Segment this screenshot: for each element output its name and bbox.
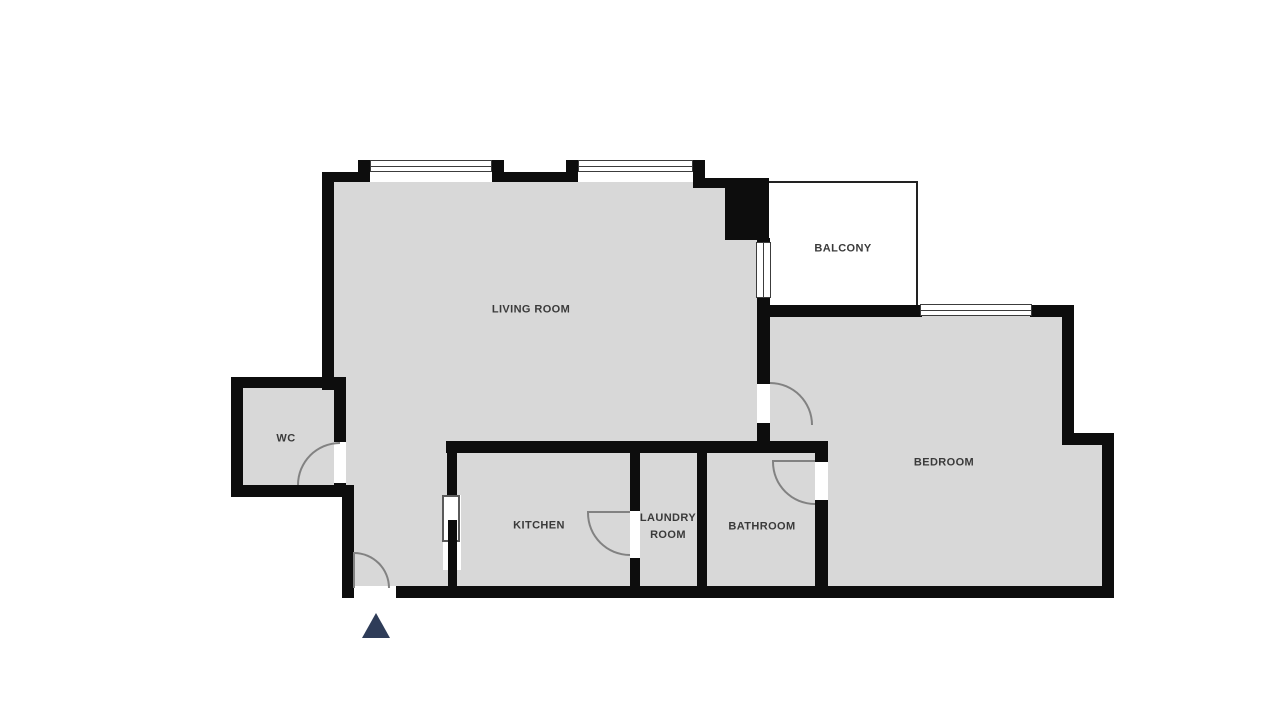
kitchen-door-leaf [587, 511, 630, 513]
wall [630, 558, 640, 588]
wall [231, 485, 346, 497]
wall [334, 388, 346, 442]
bathroom-door-leaf [772, 460, 815, 462]
wall [815, 500, 828, 588]
wall [231, 377, 346, 388]
door-gap [815, 462, 828, 500]
wall [693, 178, 727, 188]
wall [815, 453, 828, 462]
wall [342, 586, 1114, 598]
wall [1062, 305, 1074, 445]
floor-plan-canvas: LIVING ROOM BALCONY BEDROOM WC KITCHEN L… [0, 0, 1272, 716]
window [920, 304, 1032, 316]
wall [231, 377, 243, 497]
wall [1102, 433, 1114, 598]
wall [446, 441, 828, 453]
entrance-marker-icon [362, 613, 390, 638]
window [370, 160, 492, 172]
living-room-label: LIVING ROOM [492, 301, 570, 318]
wall [358, 160, 370, 182]
wall [448, 520, 457, 598]
door-gap [757, 384, 770, 423]
wall [630, 453, 640, 511]
wc-label: WC [276, 430, 295, 447]
bedroom-label: BEDROOM [914, 454, 974, 471]
kitchen-label: KITCHEN [513, 517, 565, 534]
wall [322, 172, 334, 390]
balcony-label: BALCONY [814, 240, 871, 257]
window [578, 160, 693, 172]
laundry-room-label: LAUNDRY ROOM [632, 510, 704, 544]
bathroom-label: BATHROOM [728, 518, 795, 535]
wall [447, 453, 457, 495]
entrance-door-leaf [353, 552, 355, 588]
balcony-window [756, 242, 771, 298]
column-block [725, 178, 769, 240]
wall [769, 305, 922, 317]
wall [566, 160, 578, 182]
